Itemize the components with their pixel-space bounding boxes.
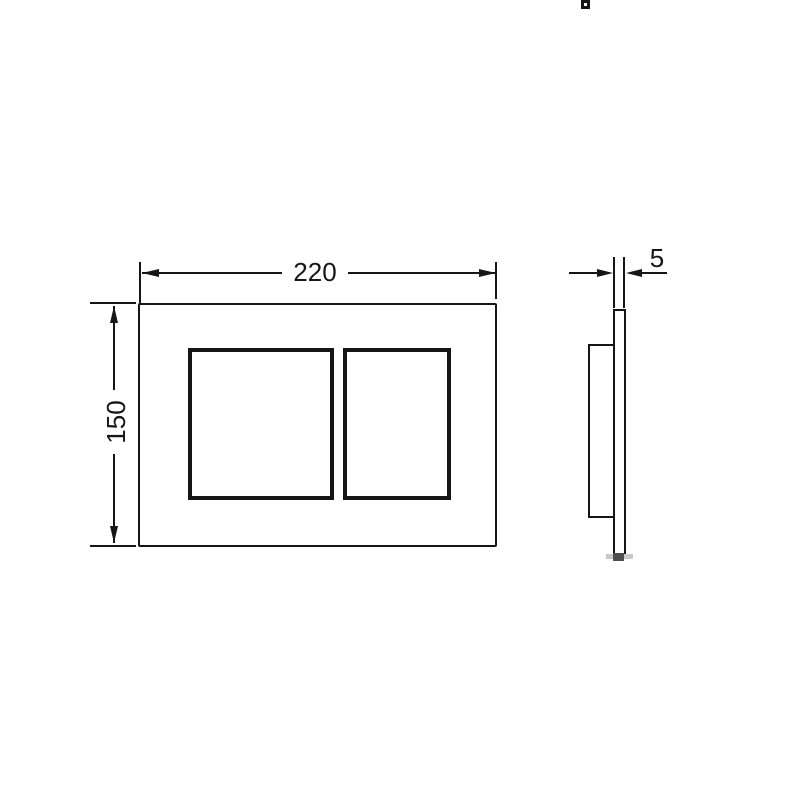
base-shadow-dark bbox=[613, 553, 624, 561]
height-extension-line-top bbox=[90, 302, 136, 304]
thickness-dimension-label: 5 bbox=[644, 243, 670, 271]
width-extension-line-left bbox=[139, 262, 141, 304]
thickness-extension-line-left bbox=[613, 257, 615, 308]
mounting-tooth bbox=[581, 0, 590, 9]
arrowhead-right-icon bbox=[597, 269, 613, 277]
flush-button-small bbox=[343, 348, 451, 500]
arrowhead-down-icon bbox=[110, 526, 118, 543]
flush-button-large bbox=[188, 348, 334, 500]
arrowhead-left-icon bbox=[142, 269, 159, 277]
arrowhead-right-icon bbox=[479, 269, 496, 277]
housing-box-side-view bbox=[588, 344, 616, 518]
width-extension-line-right bbox=[495, 262, 497, 299]
technical-drawing-canvas: 220 150 5 bbox=[0, 0, 800, 800]
plate-profile-side-view bbox=[613, 309, 626, 555]
height-extension-line-bottom bbox=[90, 545, 136, 547]
thickness-dimension-line-left bbox=[569, 272, 598, 274]
arrowhead-left-icon bbox=[626, 269, 642, 277]
width-dimension-label: 220 bbox=[282, 257, 348, 287]
arrowhead-up-icon bbox=[110, 306, 118, 323]
thickness-extension-line-right bbox=[623, 257, 625, 308]
height-dimension-label: 150 bbox=[101, 390, 131, 454]
